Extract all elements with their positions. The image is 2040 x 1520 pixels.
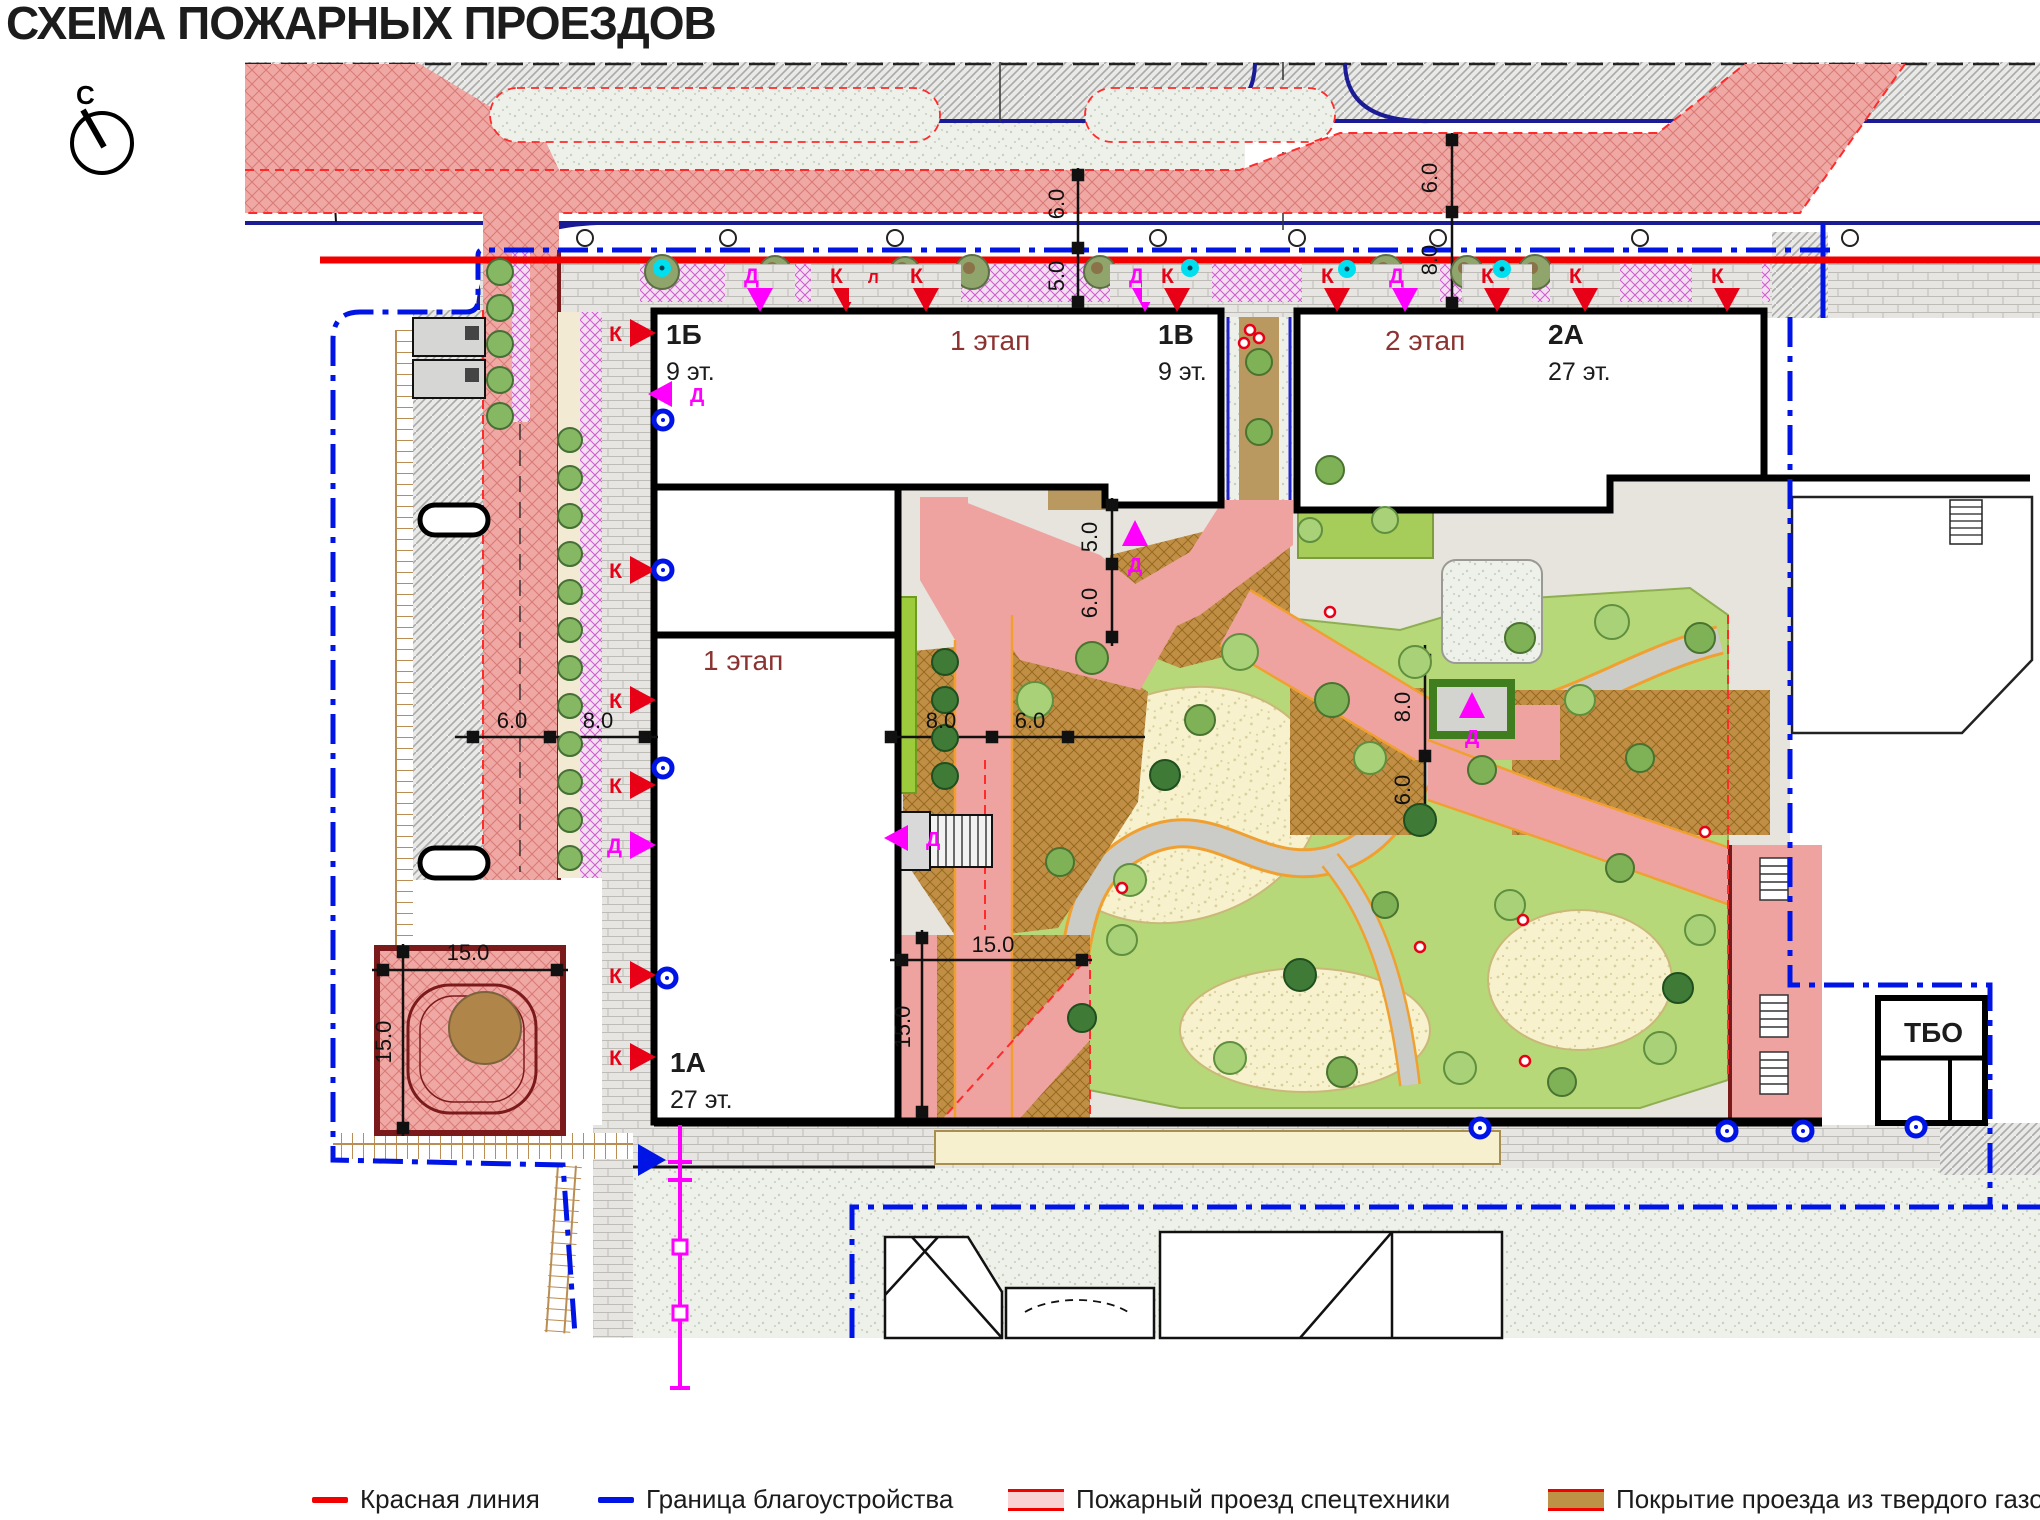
building-label: 1Б bbox=[666, 319, 702, 350]
site-plan: С ДКЛКДККДКККККККДККДДДД 1Б9 эт.1В9 эт.2… bbox=[0, 0, 2040, 1520]
tree-icon bbox=[1606, 854, 1634, 882]
tree-icon bbox=[1565, 685, 1595, 715]
north-arrow: С bbox=[72, 80, 132, 173]
pink-area-swatch bbox=[1008, 1489, 1064, 1511]
tree-icon bbox=[1298, 518, 1322, 542]
tree-icon bbox=[1246, 349, 1272, 375]
page-title: СХЕМА ПОЖАРНЫХ ПРОЕЗДОВ bbox=[6, 0, 716, 50]
tree-icon bbox=[1404, 804, 1436, 836]
tree-icon bbox=[1468, 756, 1496, 784]
legend-item-hard-lawn: Покрытие проезда из твердого газона bbox=[1548, 1484, 2040, 1515]
tree-icon bbox=[1505, 623, 1535, 653]
marker-letter: Д bbox=[690, 385, 704, 407]
marker-letter: Л bbox=[868, 270, 879, 287]
dimension-value: 6.0 bbox=[1390, 775, 1415, 806]
building-floors: 27 эт. bbox=[1548, 358, 1611, 386]
legend-item-red-line: Красная линия bbox=[312, 1484, 540, 1515]
tree-icon bbox=[1548, 1068, 1576, 1096]
courtyard-passage bbox=[1225, 317, 1293, 500]
red-line-swatch bbox=[312, 1497, 348, 1503]
tree-icon bbox=[558, 770, 582, 794]
building-label: ТБО bbox=[1904, 1017, 1963, 1048]
marker-letter: К bbox=[609, 560, 622, 583]
small-red-point-icon bbox=[1254, 333, 1264, 343]
marker-letter: Д bbox=[1128, 555, 1142, 577]
dimension-value: 5.0 bbox=[1044, 261, 1069, 292]
dimension-value: 6.0 bbox=[497, 708, 528, 733]
tree-icon bbox=[558, 656, 582, 680]
building-2a bbox=[1297, 311, 1764, 510]
building-floors: 27 эт. bbox=[670, 1086, 733, 1114]
small-red-point-icon bbox=[1520, 1056, 1530, 1066]
tree-icon bbox=[558, 504, 582, 528]
tree-icon bbox=[1444, 1052, 1476, 1084]
dimension-value: 6.0 bbox=[1015, 708, 1046, 733]
marker-letter: К bbox=[910, 265, 923, 288]
legend-label: Пожарный проезд спецтехники bbox=[1076, 1484, 1450, 1515]
utility-point-center bbox=[1500, 267, 1505, 272]
small-red-point-icon bbox=[1239, 338, 1249, 348]
hydrant-center bbox=[661, 568, 665, 572]
tree-icon bbox=[1185, 705, 1215, 735]
tree-icon bbox=[558, 846, 582, 870]
hydrant-center bbox=[665, 976, 669, 980]
dimension-value: 8.0 bbox=[583, 708, 614, 733]
hydrant-center bbox=[1478, 1126, 1482, 1130]
tree-icon bbox=[558, 428, 582, 452]
marker-letter: Д bbox=[744, 265, 759, 288]
tree-icon bbox=[1644, 1032, 1676, 1064]
small-red-point-icon bbox=[1415, 942, 1425, 952]
small-red-point-icon bbox=[1325, 607, 1335, 617]
marker-letter: Д bbox=[1129, 265, 1144, 288]
dimension-value: 15.0 bbox=[890, 1006, 915, 1049]
stage-label: 2 этап bbox=[1385, 325, 1465, 356]
brown-area-swatch bbox=[1548, 1489, 1604, 1511]
marker-letter: Д bbox=[607, 835, 622, 858]
legend-item-boundary: Граница благоустройства bbox=[598, 1484, 953, 1515]
tree-icon bbox=[558, 618, 582, 642]
small-red-point-icon bbox=[1117, 883, 1127, 893]
dimension-value: 6.0 bbox=[1417, 163, 1442, 194]
utility-point-center bbox=[1345, 267, 1350, 272]
tree-icon bbox=[1372, 892, 1398, 918]
marker-letter: Д bbox=[1465, 727, 1479, 749]
tree-icon bbox=[558, 542, 582, 566]
dimension-value: 15.0 bbox=[447, 940, 490, 965]
hydrant-center bbox=[1801, 1129, 1805, 1133]
marker-letter: К bbox=[1711, 265, 1724, 288]
building-mid bbox=[654, 487, 898, 635]
tree-icon bbox=[1107, 925, 1137, 955]
tree-icon bbox=[1399, 646, 1431, 678]
dimension-value: 8.0 bbox=[926, 708, 957, 733]
tree-icon bbox=[1150, 760, 1180, 790]
north-label: С bbox=[76, 80, 95, 110]
building-1b-1v bbox=[654, 311, 1221, 505]
marker-letter: К bbox=[1161, 265, 1174, 288]
tree-trunk-icon bbox=[1091, 262, 1103, 274]
tree-icon bbox=[1663, 973, 1693, 1003]
tree-icon bbox=[1046, 848, 1074, 876]
tree-icon bbox=[1595, 605, 1629, 639]
tree-icon bbox=[1316, 456, 1344, 484]
tree-icon bbox=[1222, 634, 1258, 670]
marker-letter: К bbox=[609, 323, 622, 346]
tree-icon bbox=[1246, 419, 1272, 445]
tree-icon bbox=[1685, 623, 1715, 653]
small-red-point-icon bbox=[1700, 827, 1710, 837]
tree-icon bbox=[1327, 1057, 1357, 1087]
legend-label: Покрытие проезда из твердого газона bbox=[1616, 1484, 2040, 1515]
marker-letter: К bbox=[1569, 265, 1582, 288]
tree-icon bbox=[558, 808, 582, 832]
hydrant-center bbox=[1725, 1129, 1729, 1133]
tree-icon bbox=[1626, 744, 1654, 772]
tree-icon bbox=[1284, 959, 1316, 991]
dimension-value: 8.0 bbox=[1390, 692, 1415, 723]
page: СХЕМА ПОЖАРНЫХ ПРОЕЗДОВ bbox=[0, 0, 2040, 1520]
marker-letter: К bbox=[609, 1047, 622, 1070]
utility-point-center bbox=[1188, 266, 1193, 271]
hydrant-center bbox=[661, 418, 665, 422]
blue-line-swatch bbox=[598, 1497, 634, 1503]
tree-icon bbox=[487, 331, 513, 357]
utility-point-center bbox=[660, 266, 665, 271]
hydrant-center bbox=[1914, 1125, 1918, 1129]
tree-icon bbox=[1068, 1004, 1096, 1032]
legend-label: Граница благоустройства bbox=[646, 1484, 953, 1515]
stage-label: 1 этап bbox=[703, 645, 783, 676]
tree-icon bbox=[558, 580, 582, 604]
dimension-value: 6.0 bbox=[1077, 588, 1102, 619]
building-label: 1А bbox=[670, 1047, 706, 1078]
building-label: 1В bbox=[1158, 319, 1194, 350]
tree-icon bbox=[487, 295, 513, 321]
dimension-value: 6.0 bbox=[1044, 189, 1069, 220]
marker-letter: К bbox=[609, 775, 622, 798]
tree-icon bbox=[487, 367, 513, 393]
tree-icon bbox=[558, 466, 582, 490]
dimension-value: 8.0 bbox=[1417, 245, 1442, 276]
legend-label: Красная линия bbox=[360, 1484, 540, 1515]
stage-label: 1 этап bbox=[950, 325, 1030, 356]
marker-letter: Д bbox=[926, 829, 940, 851]
tree-icon bbox=[1214, 1042, 1246, 1074]
marker-letter: К bbox=[1321, 265, 1334, 288]
tree-icon bbox=[558, 694, 582, 718]
tree-icon bbox=[487, 259, 513, 285]
building-floors: 9 эт. bbox=[1158, 358, 1207, 386]
tree-icon bbox=[1685, 915, 1715, 945]
hydrant-center bbox=[661, 766, 665, 770]
small-red-point-icon bbox=[1245, 325, 1255, 335]
adjacent-building-right bbox=[1792, 497, 2032, 733]
tree-icon bbox=[1315, 683, 1349, 717]
marker-letter: К bbox=[830, 265, 843, 288]
tree-icon bbox=[932, 649, 958, 675]
tree-icon bbox=[1354, 742, 1386, 774]
marker-letter: К bbox=[1481, 265, 1494, 288]
tree-icon bbox=[487, 403, 513, 429]
dimension-value: 15.0 bbox=[371, 1021, 396, 1064]
marker-letter: Д bbox=[1389, 265, 1404, 288]
building-label: 2А bbox=[1548, 319, 1584, 350]
building-floors: 9 эт. bbox=[666, 358, 715, 386]
tree-icon bbox=[558, 732, 582, 756]
tree-trunk-icon bbox=[963, 262, 975, 274]
dimension-value: 5.0 bbox=[1077, 522, 1102, 553]
tree-icon bbox=[932, 763, 958, 789]
marker-letter: К bbox=[609, 965, 622, 988]
tree-icon bbox=[1372, 507, 1398, 533]
tree-icon bbox=[1076, 642, 1108, 674]
dimension-value: 15.0 bbox=[972, 932, 1015, 957]
legend-item-fire-lane: Пожарный проезд спецтехники bbox=[1008, 1484, 1450, 1515]
small-red-point-icon bbox=[1518, 915, 1528, 925]
fire-truck-pad bbox=[377, 948, 563, 1133]
